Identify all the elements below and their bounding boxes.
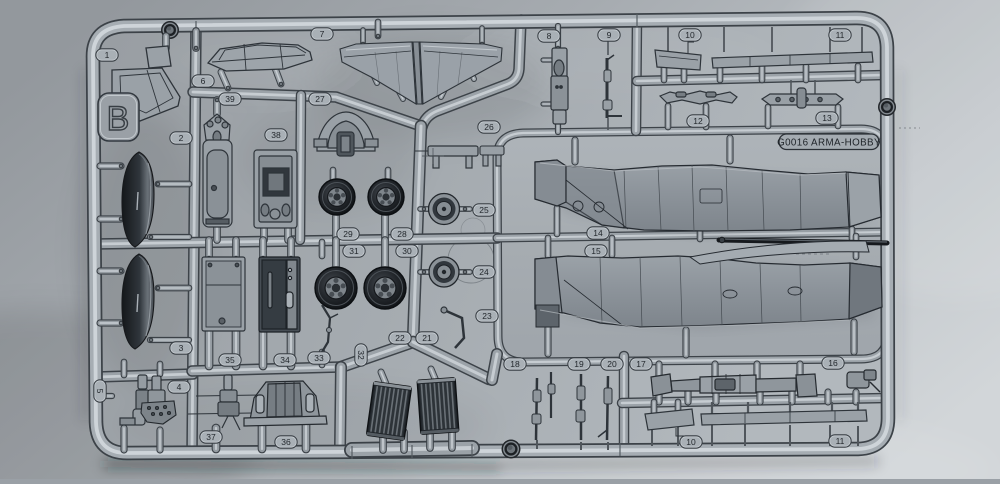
svg-text:10: 10 xyxy=(686,437,696,447)
svg-text:15: 15 xyxy=(591,246,601,256)
svg-text:34: 34 xyxy=(280,355,290,365)
svg-text:7: 7 xyxy=(320,29,325,39)
svg-text:37: 37 xyxy=(206,432,216,442)
svg-text:39: 39 xyxy=(225,94,235,104)
svg-text:11: 11 xyxy=(836,436,845,446)
svg-text:5: 5 xyxy=(95,389,105,394)
svg-text:24: 24 xyxy=(479,267,489,277)
svg-text:38: 38 xyxy=(271,130,281,140)
svg-text:36: 36 xyxy=(281,437,291,447)
svg-text:4: 4 xyxy=(177,382,182,392)
svg-text:2: 2 xyxy=(179,133,184,143)
svg-text:30: 30 xyxy=(402,246,412,256)
svg-text:9: 9 xyxy=(607,30,612,40)
svg-text:29: 29 xyxy=(343,229,353,239)
svg-text:35: 35 xyxy=(225,355,235,365)
svg-text:25: 25 xyxy=(479,205,489,215)
svg-text:21: 21 xyxy=(422,333,432,343)
svg-text:G0016 ARMA-HOBBY: G0016 ARMA-HOBBY xyxy=(777,138,881,149)
svg-text:19: 19 xyxy=(574,359,584,369)
svg-text:14: 14 xyxy=(593,228,603,238)
svg-text:23: 23 xyxy=(482,311,492,321)
svg-text:26: 26 xyxy=(484,122,494,132)
svg-text:10: 10 xyxy=(685,30,695,40)
svg-text:33: 33 xyxy=(314,353,324,363)
svg-text:28: 28 xyxy=(397,229,407,239)
svg-text:11: 11 xyxy=(836,30,845,40)
svg-text:20: 20 xyxy=(607,359,617,369)
svg-text:18: 18 xyxy=(510,359,520,369)
svg-text:22: 22 xyxy=(395,333,405,343)
svg-text:16: 16 xyxy=(828,358,838,368)
svg-text:8: 8 xyxy=(547,31,552,41)
svg-text:32: 32 xyxy=(356,350,366,360)
svg-text:13: 13 xyxy=(822,113,832,123)
svg-text:1: 1 xyxy=(105,50,110,60)
svg-text:3: 3 xyxy=(179,343,184,353)
svg-text:31: 31 xyxy=(349,246,359,256)
svg-text:27: 27 xyxy=(315,94,325,104)
svg-text:6: 6 xyxy=(201,76,206,86)
svg-text:17: 17 xyxy=(636,359,646,369)
svg-text:B: B xyxy=(107,100,130,138)
svg-text:12: 12 xyxy=(693,116,703,126)
